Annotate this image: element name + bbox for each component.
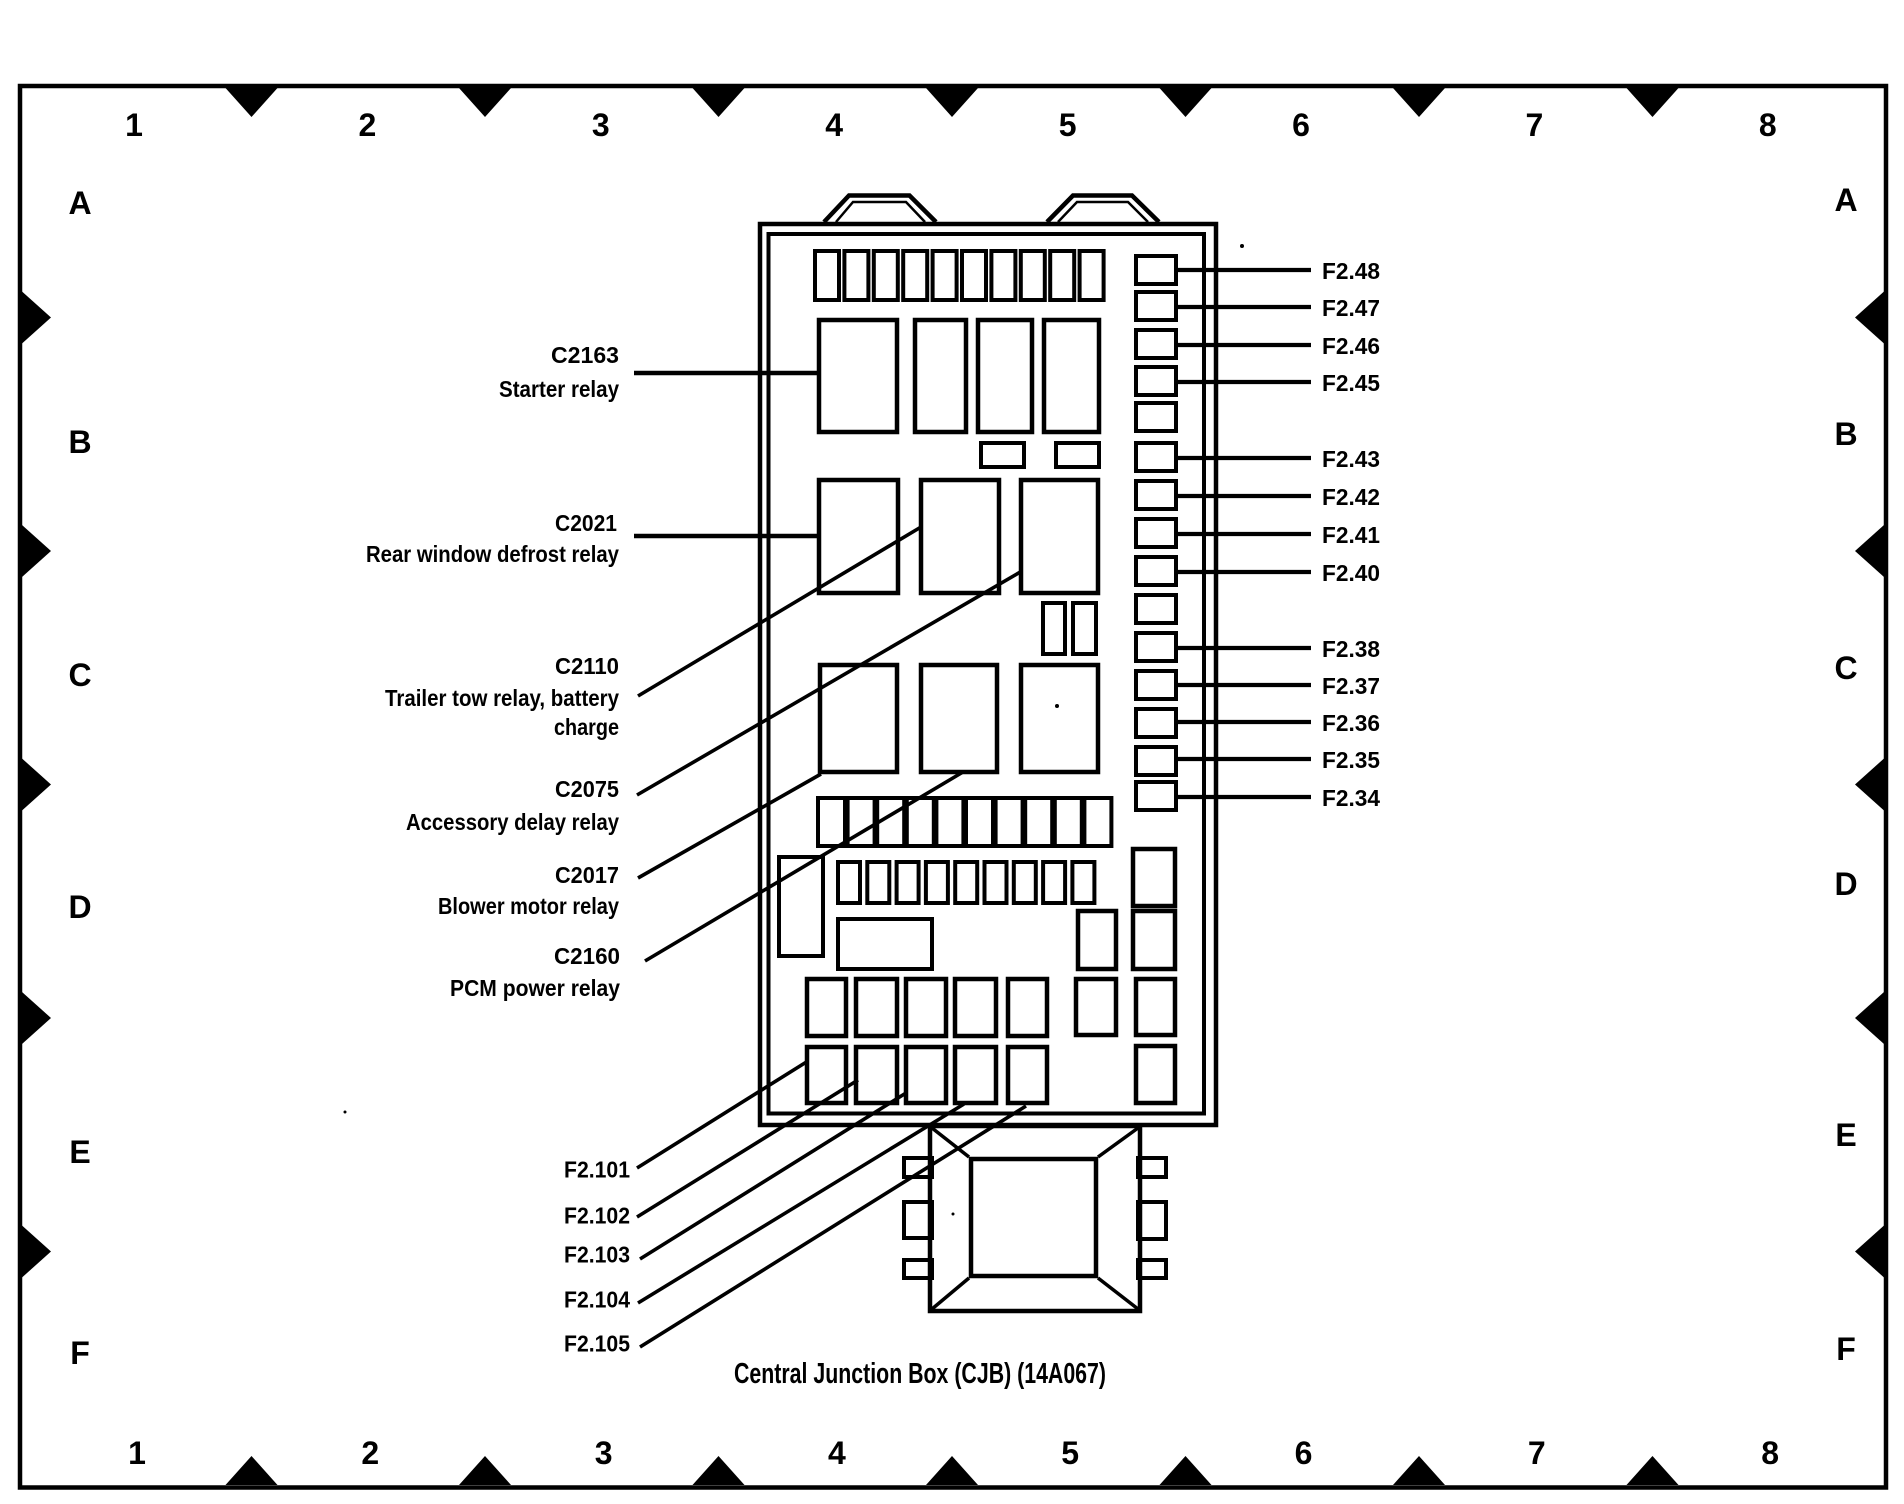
svg-text:F2.46: F2.46 bbox=[1322, 333, 1380, 359]
svg-text:1: 1 bbox=[128, 1435, 146, 1471]
svg-text:4: 4 bbox=[825, 107, 843, 143]
svg-text:C2075: C2075 bbox=[555, 776, 619, 802]
svg-text:F: F bbox=[1836, 1331, 1856, 1367]
svg-text:5: 5 bbox=[1059, 107, 1077, 143]
svg-text:C: C bbox=[1834, 650, 1857, 686]
svg-text:F2.42: F2.42 bbox=[1322, 484, 1380, 510]
svg-text:7: 7 bbox=[1526, 107, 1544, 143]
svg-text:F2.38: F2.38 bbox=[1322, 636, 1380, 662]
svg-text:Blower motor relay: Blower motor relay bbox=[438, 893, 619, 919]
svg-text:B: B bbox=[68, 424, 91, 460]
svg-text:A: A bbox=[1834, 182, 1857, 218]
svg-text:Accessory delay relay: Accessory delay relay bbox=[406, 809, 619, 835]
svg-text:C2017: C2017 bbox=[555, 862, 619, 888]
svg-text:2: 2 bbox=[359, 107, 377, 143]
svg-text:F2.47: F2.47 bbox=[1322, 295, 1380, 321]
svg-text:Trailer tow relay, battery: Trailer tow relay, battery bbox=[385, 685, 619, 711]
svg-text:C2160: C2160 bbox=[554, 943, 620, 969]
svg-text:charge: charge bbox=[554, 714, 619, 740]
svg-text:F2.101: F2.101 bbox=[564, 1157, 630, 1183]
svg-text:F2.48: F2.48 bbox=[1322, 258, 1380, 284]
svg-text:B: B bbox=[1834, 416, 1857, 452]
svg-text:F2.35: F2.35 bbox=[1322, 747, 1380, 773]
svg-text:F2.37: F2.37 bbox=[1322, 673, 1380, 699]
svg-text:Starter relay: Starter relay bbox=[499, 376, 619, 402]
svg-text:1: 1 bbox=[125, 107, 143, 143]
svg-text:PCM power relay: PCM power relay bbox=[450, 975, 620, 1001]
svg-text:8: 8 bbox=[1761, 1435, 1779, 1471]
svg-text:F2.40: F2.40 bbox=[1322, 560, 1380, 586]
svg-text:4: 4 bbox=[828, 1435, 846, 1471]
svg-text:Rear window defrost relay: Rear window defrost relay bbox=[366, 541, 619, 567]
svg-text:C: C bbox=[68, 657, 91, 693]
svg-text:C2163: C2163 bbox=[551, 342, 619, 368]
svg-text:F2.103: F2.103 bbox=[564, 1242, 630, 1268]
svg-text:D: D bbox=[68, 889, 91, 925]
svg-text:F2.105: F2.105 bbox=[564, 1331, 630, 1357]
svg-text:F2.41: F2.41 bbox=[1322, 522, 1380, 548]
svg-text:C2110: C2110 bbox=[555, 653, 619, 679]
svg-text:2: 2 bbox=[361, 1435, 379, 1471]
svg-text:E: E bbox=[1835, 1117, 1856, 1153]
svg-text:7: 7 bbox=[1528, 1435, 1546, 1471]
svg-text:F2.34: F2.34 bbox=[1322, 785, 1380, 811]
svg-text:C2021: C2021 bbox=[555, 510, 617, 536]
svg-text:8: 8 bbox=[1759, 107, 1777, 143]
svg-text:E: E bbox=[69, 1134, 90, 1170]
svg-text:F2.45: F2.45 bbox=[1322, 370, 1380, 396]
svg-text:3: 3 bbox=[592, 107, 610, 143]
svg-text:F2.102: F2.102 bbox=[564, 1203, 630, 1229]
svg-text:6: 6 bbox=[1292, 107, 1310, 143]
svg-text:3: 3 bbox=[595, 1435, 613, 1471]
svg-text:F: F bbox=[70, 1335, 90, 1371]
svg-text:F2.36: F2.36 bbox=[1322, 710, 1380, 736]
svg-text:A: A bbox=[68, 185, 91, 221]
svg-text:F2.104: F2.104 bbox=[564, 1287, 630, 1313]
svg-text:D: D bbox=[1834, 866, 1857, 902]
svg-text:F2.43: F2.43 bbox=[1322, 446, 1380, 472]
svg-text:6: 6 bbox=[1295, 1435, 1313, 1471]
svg-text:Central Junction Box (CJB) (14: Central Junction Box (CJB) (14A067) bbox=[734, 1358, 1106, 1390]
svg-text:5: 5 bbox=[1061, 1435, 1079, 1471]
